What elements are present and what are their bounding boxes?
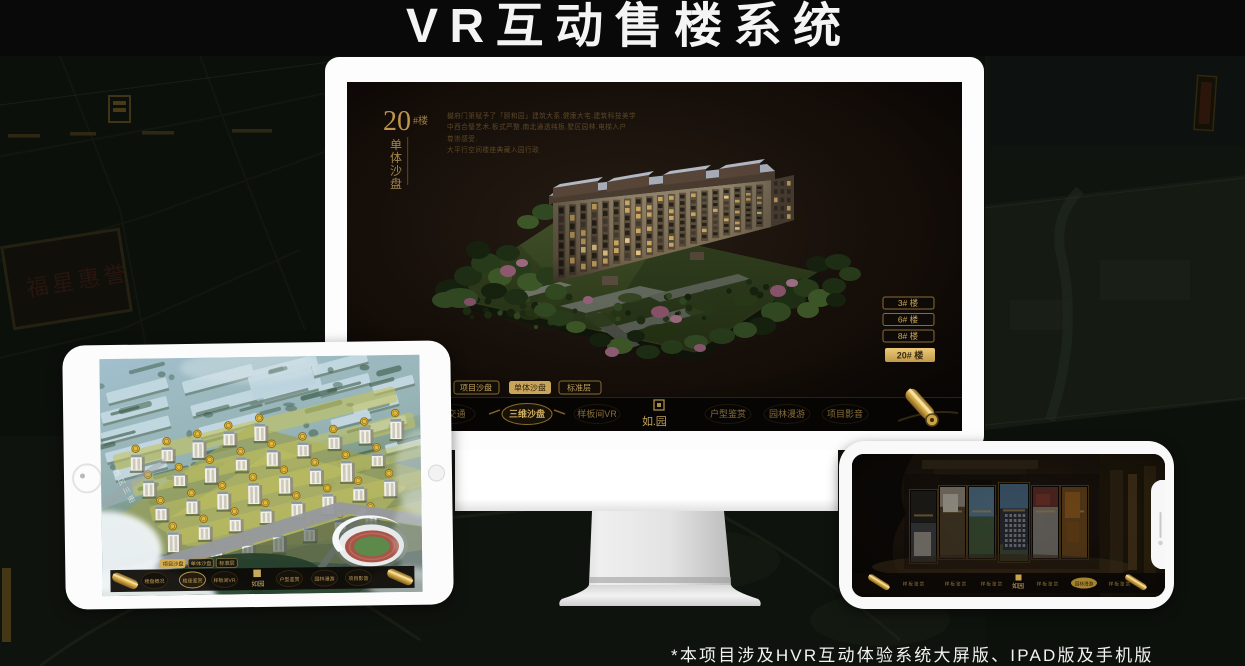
svg-text:样板鉴赏: 样板鉴赏 bbox=[981, 581, 1003, 588]
svg-text:户型鉴赏: 户型鉴赏 bbox=[279, 576, 299, 583]
svg-text:中西合璧艺术.板式严整.南北通透纯板.墅区园林.电梯入户: 中西合璧艺术.板式严整.南北通透纯板.墅区园林.电梯入户 bbox=[447, 122, 627, 131]
svg-text:8# 楼: 8# 楼 bbox=[898, 331, 919, 341]
svg-text:项目影音: 项目影音 bbox=[827, 408, 863, 419]
svg-text:3# 楼: 3# 楼 bbox=[898, 298, 919, 308]
svg-text:20# 楼: 20# 楼 bbox=[897, 350, 924, 361]
svg-text:单: 单 bbox=[390, 138, 402, 152]
svg-text:尊崇感受.: 尊崇感受. bbox=[447, 134, 478, 143]
svg-text:楼盘概况: 楼盘概况 bbox=[144, 578, 164, 585]
svg-text:园林漫游: 园林漫游 bbox=[314, 575, 334, 582]
svg-text:20: 20 bbox=[383, 106, 411, 137]
svg-text:样板鉴赏: 样板鉴赏 bbox=[1037, 581, 1059, 588]
svg-text:6# 楼: 6# 楼 bbox=[898, 315, 919, 325]
svg-text:如园: 如园 bbox=[251, 579, 264, 588]
svg-text:盘: 盘 bbox=[390, 176, 402, 191]
svg-text:项目沙盘: 项目沙盘 bbox=[460, 383, 492, 393]
svg-text:项目影音: 项目影音 bbox=[348, 575, 368, 582]
svg-text:样板间VR: 样板间VR bbox=[213, 577, 235, 584]
svg-text:樾府门第赋予了「颐和园」建筑大系.健康大宅.建筑科技美学: 樾府门第赋予了「颐和园」建筑大系.健康大宅.建筑科技美学 bbox=[447, 111, 636, 120]
svg-text:三维沙盘: 三维沙盘 bbox=[509, 408, 545, 419]
svg-text:标准层: 标准层 bbox=[219, 559, 235, 567]
svg-text:样板鉴赏: 样板鉴赏 bbox=[945, 581, 967, 588]
svg-text:样板间VR: 样板间VR bbox=[577, 408, 617, 419]
svg-text:样板鉴赏: 样板鉴赏 bbox=[1109, 581, 1131, 588]
svg-text:如.园: 如.园 bbox=[642, 414, 667, 428]
svg-text:标准层: 标准层 bbox=[567, 383, 591, 393]
svg-text:体: 体 bbox=[390, 151, 402, 165]
svg-text:沙: 沙 bbox=[390, 164, 402, 178]
svg-text:楼座鉴赏: 楼座鉴赏 bbox=[182, 577, 202, 584]
svg-text:#楼: #楼 bbox=[413, 114, 428, 127]
svg-text:如园: 如园 bbox=[1012, 582, 1024, 590]
svg-text:样板鉴赏: 样板鉴赏 bbox=[903, 581, 925, 588]
svg-text:户型鉴赏: 户型鉴赏 bbox=[710, 408, 746, 419]
svg-text:园林漫游: 园林漫游 bbox=[769, 408, 805, 419]
svg-text:单体沙盘: 单体沙盘 bbox=[514, 383, 546, 393]
svg-text:大平行空间楼座典藏入园行政: 大平行空间楼座典藏入园行政 bbox=[447, 145, 539, 154]
svg-text:园林漫游: 园林漫游 bbox=[1075, 581, 1094, 588]
